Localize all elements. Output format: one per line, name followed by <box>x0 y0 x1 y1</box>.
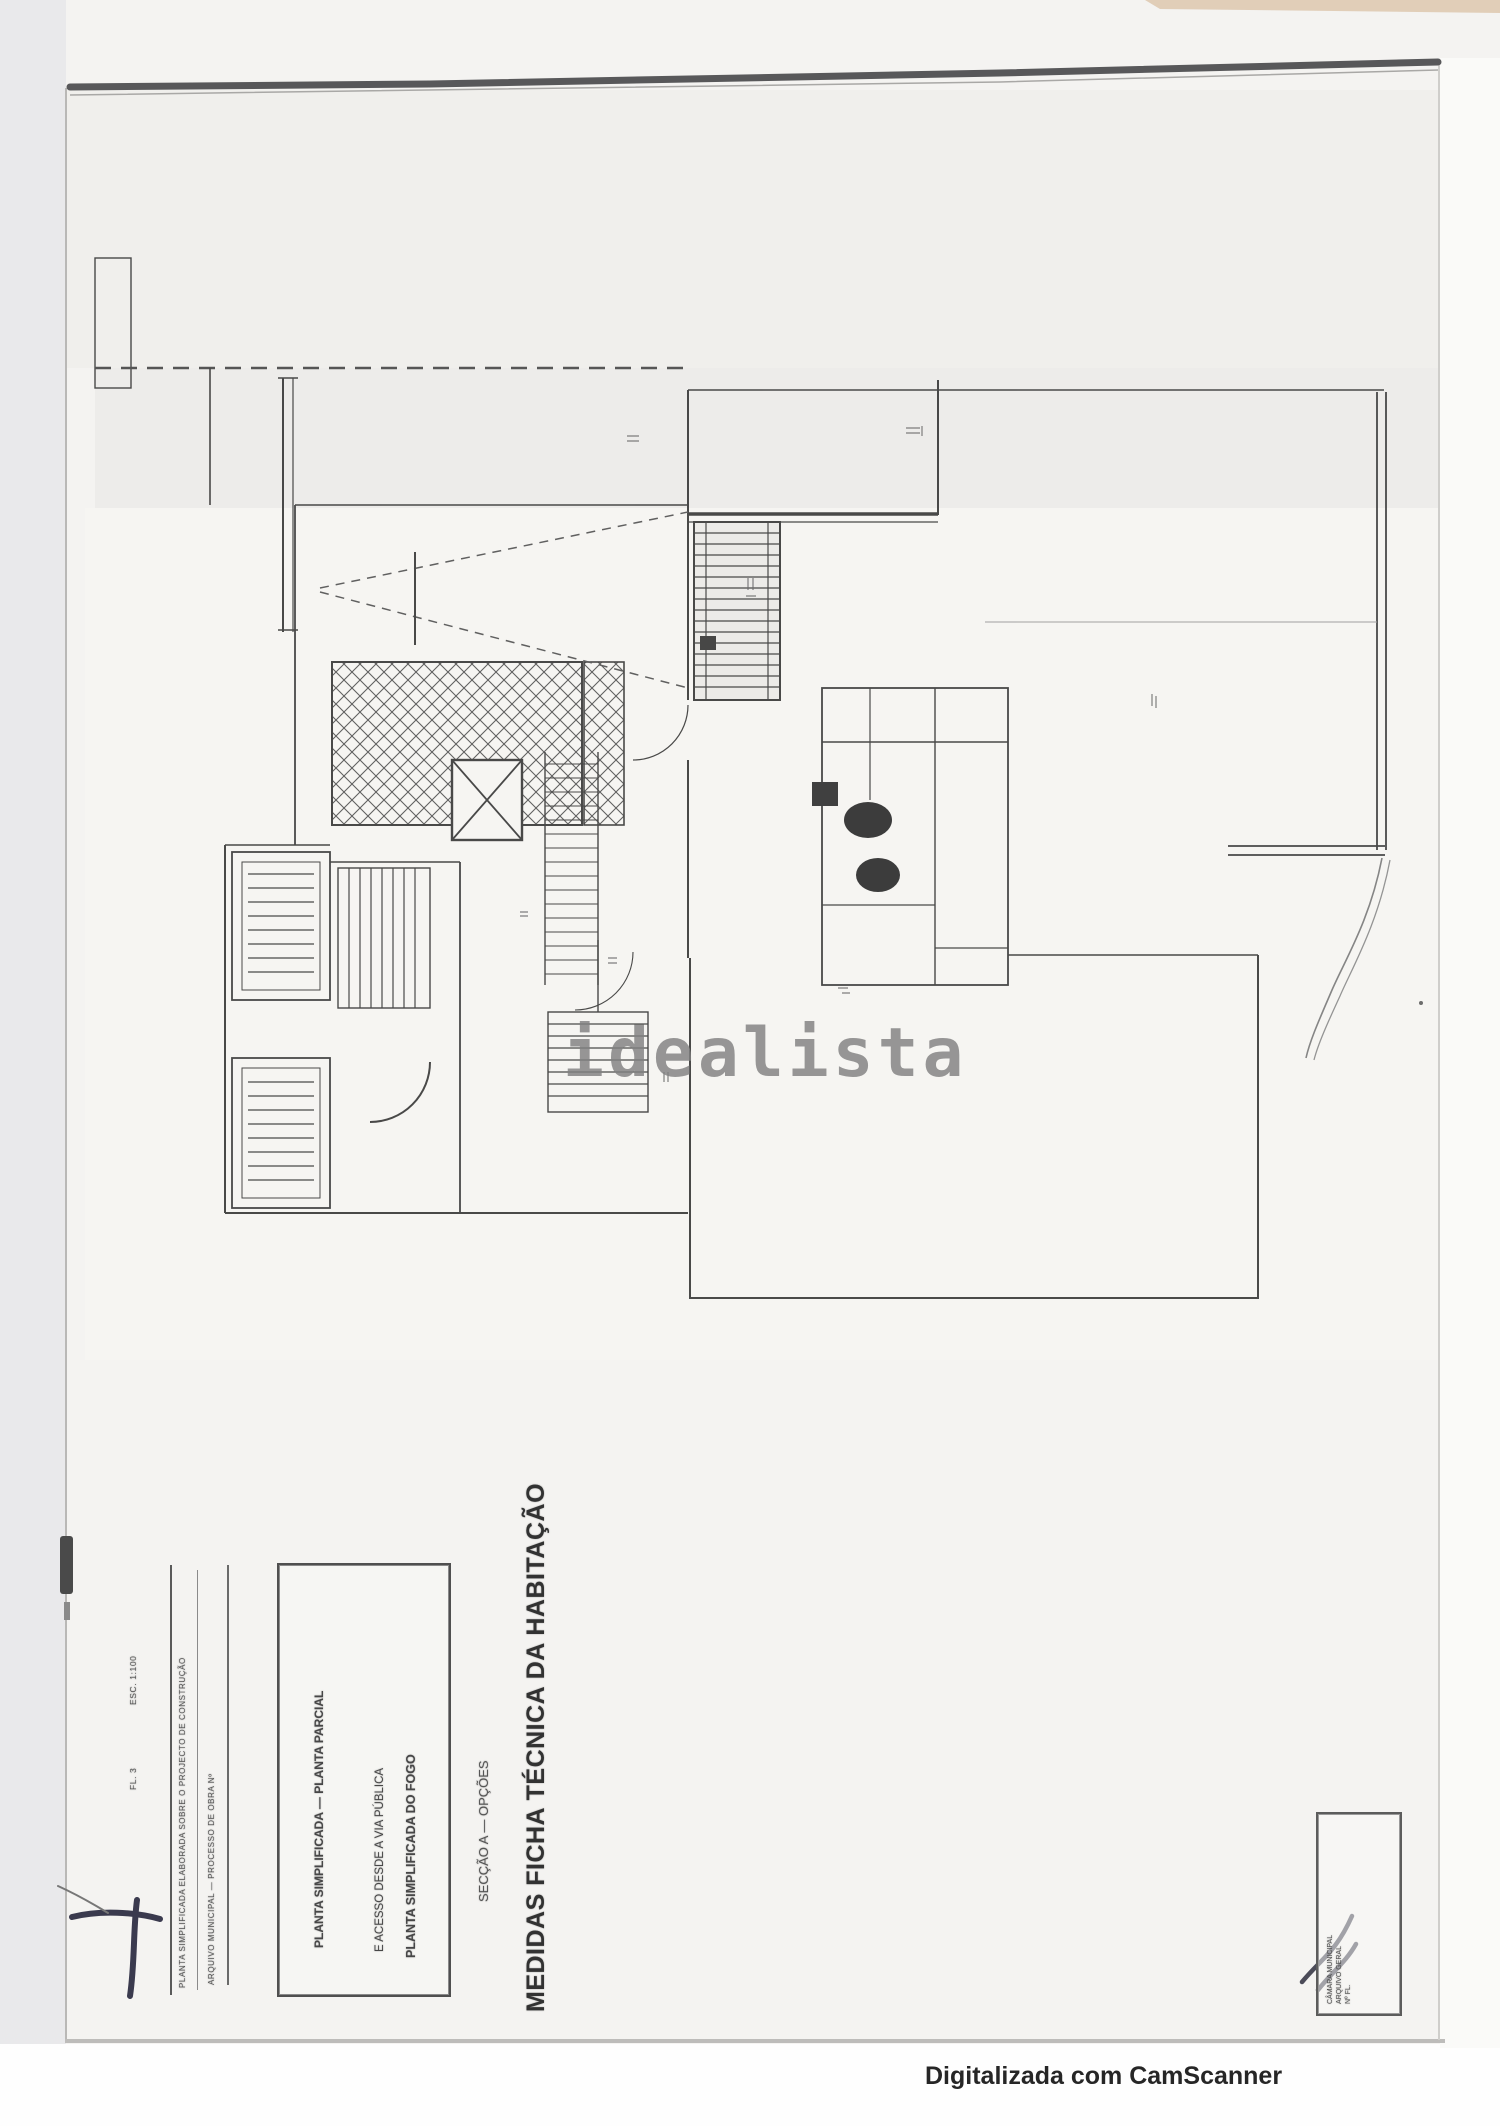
stamp-line-1: CÂMARA MUNICIPAL <box>1327 1935 1334 2004</box>
stamp-line-3: Nº <box>1345 1996 1352 2004</box>
titleblock-rule-3 <box>227 1565 229 1985</box>
fold-line-top <box>70 62 1438 87</box>
idealista-watermark: idealista <box>563 1014 967 1093</box>
drawing-main-title: MEDIDAS FICHA TÉCNICA DA HABITAÇÃO <box>522 1560 551 2012</box>
titleblock-box-line-3: PLANTA SIMPLIFICADA — PLANTA PARCIAL <box>312 1608 326 1948</box>
scan-artifact-top-right <box>1145 0 1500 13</box>
scanned-floorplan-page: { "page": { "watermark": "idealista", "s… <box>0 0 1500 2126</box>
titleblock-rule-2 <box>197 1570 198 1990</box>
handwritten-cross <box>58 1886 160 1996</box>
stamp-line-2: ARQUIVO GERAL <box>1336 1946 1343 2004</box>
titleblock-side-note-1: PLANTA SIMPLIFICADA ELABORADA SOBRE O PR… <box>178 1568 187 1988</box>
stamp-line-4: FL. <box>1345 1984 1352 1994</box>
dimension-marks <box>520 426 1423 1082</box>
drawing-subtitle: SECÇÃO A — OPÇÕES <box>476 1640 491 1902</box>
titleblock-rule-1 <box>170 1565 172 1995</box>
camscanner-credit: Digitalizada com CamScanner <box>925 2062 1282 2091</box>
titleblock-side-note-2: ARQUIVO MUNICIPAL — PROCESSO DE OBRA Nº <box>207 1585 216 1985</box>
titleblock-margin-note-1: ESC. 1:100 <box>128 1595 138 1705</box>
titleblock-margin-note-2: FL. 3 <box>128 1730 138 1790</box>
titleblock-box-line-1: PLANTA SIMPLIFICADA DO FOGO <box>404 1603 418 1958</box>
titleblock-box-line-2: E ACESSO DESDE A VIA PÚBLICA <box>374 1607 386 1952</box>
titleblock-box <box>277 1563 451 1997</box>
